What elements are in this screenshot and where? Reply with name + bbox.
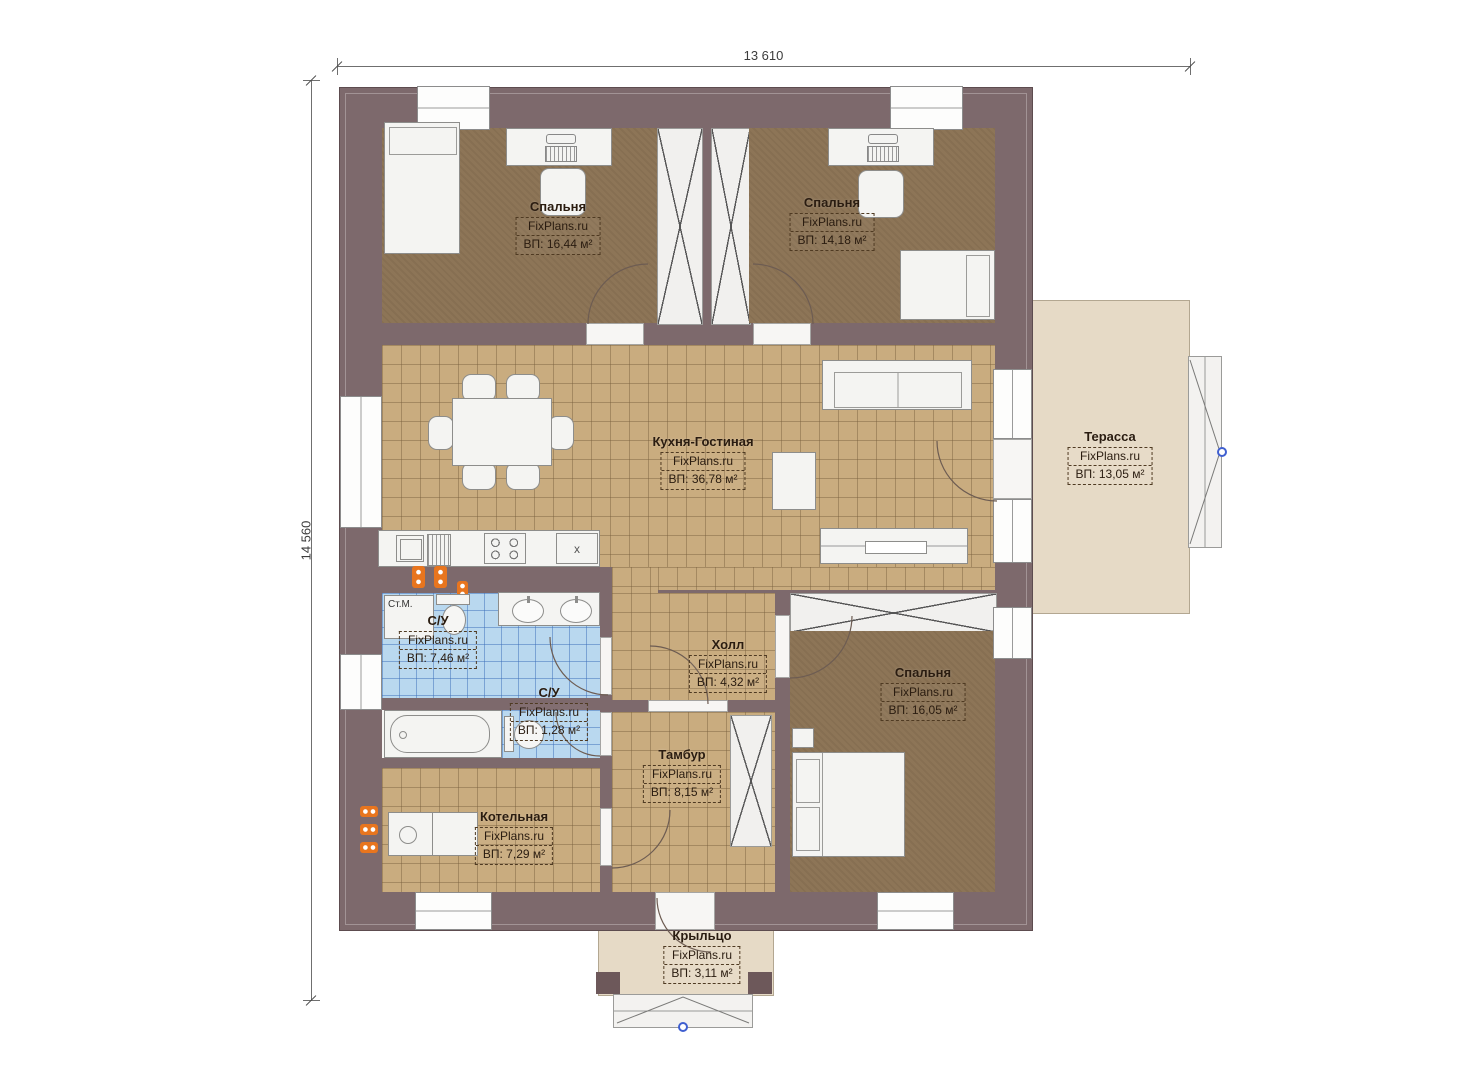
room-area: ВП: 36,78 м²	[662, 471, 745, 488]
bed-single-2	[900, 250, 995, 320]
room-label-boiler: Котельная FixPlans.ru ВП: 7,29 м²	[475, 810, 553, 865]
radiator-icon	[412, 566, 425, 588]
washing-machine-label: Ст.М.	[388, 599, 413, 610]
bathroom-door-opening	[600, 637, 612, 695]
room-name: Тамбур	[643, 748, 721, 763]
room-brand: FixPlans.ru	[511, 704, 587, 722]
room-name: Холл	[689, 638, 767, 653]
room-brand: FixPlans.ru	[664, 947, 739, 965]
printer-icon	[867, 146, 899, 162]
room-label-bedroom1: Спальня FixPlans.ru ВП: 16,44 м²	[516, 200, 601, 255]
desk-1	[506, 128, 612, 166]
laptop-icon	[868, 134, 898, 144]
pillow	[796, 759, 820, 803]
pillow	[389, 127, 457, 155]
room-area: ВП: 14,18 м²	[791, 232, 874, 249]
room-brand: FixPlans.ru	[662, 453, 745, 471]
boiler-room-window	[415, 892, 492, 930]
room-label-kitchen: Кухня-Гостиная FixPlans.ru ВП: 36,78 м²	[652, 435, 753, 490]
bed-double	[792, 752, 905, 857]
radiator-icon	[360, 824, 378, 835]
room-area: ВП: 16,05 м²	[882, 702, 965, 719]
bedroom1-wardrobe	[657, 128, 703, 325]
room-name: Спальня	[516, 200, 601, 215]
corridor-floor	[612, 567, 658, 593]
tv-stand	[820, 528, 968, 564]
room-name: Терасса	[1068, 430, 1153, 445]
bathtub-basin	[390, 715, 490, 753]
room-name: Спальня	[790, 196, 875, 211]
tambour-closet	[730, 715, 772, 847]
room-brand: FixPlans.ru	[517, 218, 600, 236]
room-label-bedroom2: Спальня FixPlans.ru ВП: 14,18 м²	[790, 196, 875, 251]
dining-chair	[506, 462, 540, 490]
room-area: ВП: 1,28 м²	[511, 722, 587, 739]
nightstand	[792, 728, 814, 748]
room-area: ВП: 16,44 м²	[517, 236, 600, 253]
room-name: Спальня	[881, 666, 966, 681]
bedroom3-window	[877, 892, 954, 930]
room-label-bathroom: С/У FixPlans.ru ВП: 7,46 м²	[399, 614, 477, 669]
top-dimension-line	[337, 66, 1190, 67]
kitchen-sink	[396, 535, 424, 562]
dining-chair	[462, 462, 496, 490]
bedroom2-window	[890, 86, 963, 130]
room-name: Кухня-Гостиная	[652, 435, 753, 450]
room-brand: FixPlans.ru	[644, 766, 720, 784]
floor-plan-canvas: 13 610 14 560	[0, 0, 1474, 1080]
room-name: Котельная	[475, 810, 553, 825]
sofa-seat	[834, 372, 962, 408]
porch-wall-stub-left	[596, 972, 620, 994]
desk-2	[828, 128, 934, 166]
drainboard-icon	[427, 534, 451, 566]
room-area: ВП: 7,29 м²	[476, 846, 552, 863]
porch-steps	[613, 994, 753, 1028]
bedroom3-wardrobe	[790, 593, 997, 633]
entrance-door-opening	[655, 892, 715, 930]
wc-door-opening	[600, 712, 612, 756]
room-label-terrace: Терасса FixPlans.ru ВП: 13,05 м²	[1068, 430, 1153, 485]
toilet-tank	[436, 594, 470, 605]
top-dimension-label: 13 610	[337, 48, 1190, 63]
room-name: С/У	[510, 686, 588, 701]
terrace-window-lower	[993, 499, 1032, 563]
boiler-dial	[399, 826, 417, 844]
room-label-tambour: Тамбур FixPlans.ru ВП: 8,15 м²	[643, 748, 721, 803]
terrace-window-upper	[993, 369, 1032, 439]
stove-burners	[484, 533, 526, 564]
room-brand: FixPlans.ru	[476, 828, 552, 846]
room-area: ВП: 7,46 м²	[400, 650, 476, 667]
room-brand: FixPlans.ru	[1069, 448, 1152, 466]
room-area: ВП: 13,05 м²	[1069, 466, 1152, 483]
room-name: С/У	[399, 614, 477, 629]
side-table	[772, 452, 816, 510]
bedroom2-door-opening	[753, 323, 811, 345]
dining-chair	[428, 416, 454, 450]
bedroom1-door-opening	[586, 323, 644, 345]
sofa	[822, 360, 972, 410]
room-label-porch: Крыльцо FixPlans.ru ВП: 3,11 м²	[663, 929, 740, 984]
room-area: ВП: 8,15 м²	[644, 784, 720, 801]
left-dimension-label: 14 560	[299, 511, 314, 571]
pillow	[796, 807, 820, 851]
dining-table	[452, 398, 552, 466]
sink-icon	[512, 599, 544, 623]
room-brand: FixPlans.ru	[791, 214, 874, 232]
room-brand: FixPlans.ru	[400, 632, 476, 650]
boiler-unit	[388, 812, 478, 856]
bathtub	[384, 710, 502, 758]
sink-icon	[560, 599, 592, 623]
terrace-door-opening	[993, 439, 1032, 499]
boiler-door-opening	[600, 808, 612, 866]
tv-icon	[865, 541, 927, 554]
kitchen-window	[340, 396, 382, 528]
bedroom2-wardrobe	[711, 128, 751, 325]
bedroom3-door-opening	[775, 615, 790, 678]
laptop-icon	[546, 134, 576, 144]
room-label-hall: Холл FixPlans.ru ВП: 4,32 м²	[689, 638, 767, 693]
radiator-icon	[360, 806, 378, 817]
room-area: ВП: 3,11 м²	[664, 965, 739, 982]
living-floor-extension	[658, 567, 995, 590]
porch-wall-stub-right	[748, 972, 772, 994]
counter-cabinet-x: x	[556, 533, 598, 564]
bed-single-1	[384, 122, 460, 254]
room-area: ВП: 4,32 м²	[690, 674, 766, 691]
bathroom-window	[340, 654, 382, 710]
room-brand: FixPlans.ru	[690, 656, 766, 674]
cabinet-x-marker: x	[574, 542, 580, 556]
room-label-wc: С/У FixPlans.ru ВП: 1,28 м²	[510, 686, 588, 741]
sink-basin	[400, 539, 422, 560]
pillow	[966, 255, 990, 317]
bedroom3-side-window	[993, 607, 1032, 659]
room-name: Крыльцо	[663, 929, 740, 944]
printer-icon	[545, 146, 577, 162]
terrace-steps	[1188, 356, 1222, 548]
radiator-icon	[360, 842, 378, 853]
hall-tambour-door-opening	[648, 700, 728, 712]
room-brand: FixPlans.ru	[882, 684, 965, 702]
room-label-bedroom3: Спальня FixPlans.ru ВП: 16,05 м²	[881, 666, 966, 721]
radiator-icon	[434, 566, 447, 588]
